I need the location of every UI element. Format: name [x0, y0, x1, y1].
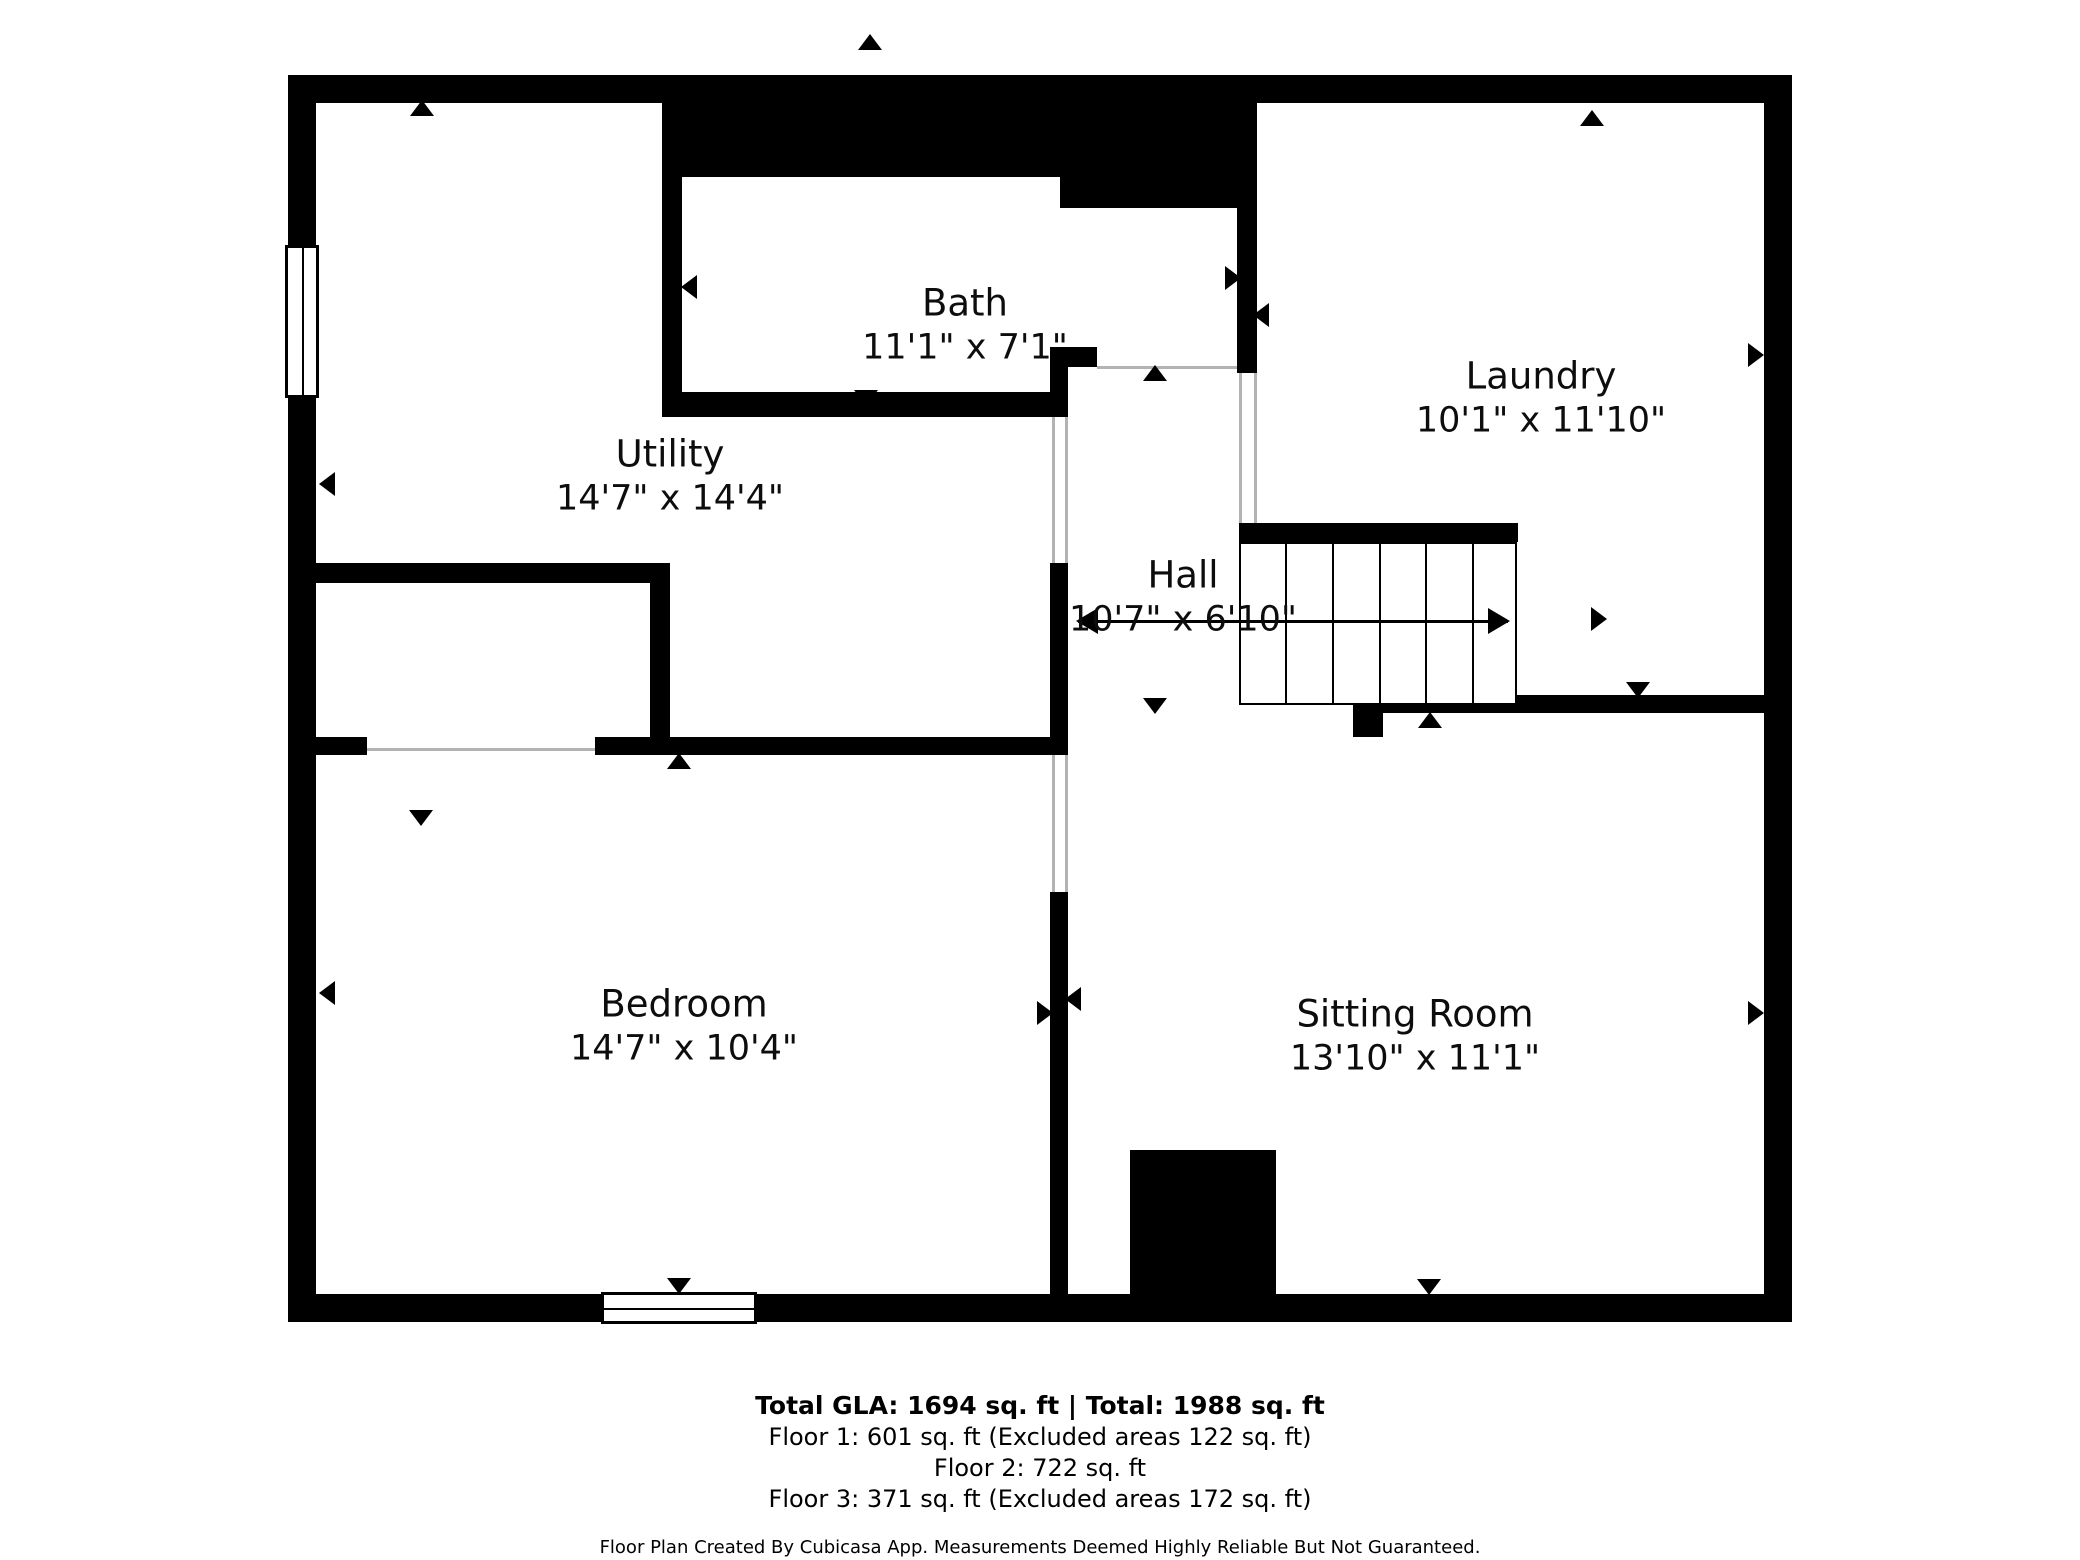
room-dimensions-bath: 11'1" x 7'1" — [862, 326, 1068, 370]
room-name-sitting: Sitting Room — [1290, 992, 1540, 1037]
direction-marker-left — [681, 275, 697, 299]
room-label-bath: Bath11'1" x 7'1" — [862, 281, 1068, 370]
door-opening-line — [1052, 417, 1055, 563]
direction-marker-right — [1225, 266, 1241, 290]
door-opening-line — [1065, 755, 1068, 892]
direction-marker-left — [319, 981, 335, 1005]
floor2-area-text: Floor 2: 722 sq. ft — [0, 1453, 2080, 1484]
direction-marker-up — [410, 100, 434, 116]
room-dimensions-laundry: 10'1" x 11'10" — [1416, 399, 1666, 443]
floor3-area-text: Floor 3: 371 sq. ft (Excluded areas 172 … — [0, 1484, 2080, 1515]
direction-marker-left — [319, 472, 335, 496]
direction-marker-up — [1580, 110, 1604, 126]
room-name-bedroom: Bedroom — [570, 982, 798, 1027]
area-summary: Total GLA: 1694 sq. ft | Total: 1988 sq.… — [0, 1390, 2080, 1559]
direction-marker-down — [1143, 698, 1167, 714]
direction-marker-down — [409, 810, 433, 826]
window-mullion — [604, 1308, 754, 1310]
mass-over-bath — [662, 75, 1060, 177]
direction-marker-down — [1626, 682, 1650, 698]
closet-right-wall — [650, 563, 670, 755]
outer-left-upper — [288, 75, 316, 247]
direction-marker-up — [858, 34, 882, 50]
door-opening-line — [1239, 373, 1242, 523]
room-dimensions-bedroom: 14'7" x 10'4" — [570, 1027, 798, 1071]
door-opening-line — [1097, 366, 1237, 369]
direction-marker-right — [1037, 1001, 1053, 1025]
door-opening-line — [1052, 755, 1055, 892]
room-label-sitting: Sitting Room13'10" x 11'1" — [1290, 992, 1540, 1081]
bath-left-wall — [662, 177, 682, 417]
room-dimensions-hall: 10'7" x 6'10" — [1069, 598, 1297, 642]
hall-left-wall — [1050, 563, 1068, 755]
under-stairs-block — [1353, 713, 1383, 737]
closet-top-wall — [288, 563, 670, 583]
direction-marker-left — [1065, 987, 1081, 1011]
bedroom-top-wall — [595, 737, 1068, 755]
total-gla-text: Total GLA: 1694 sq. ft | Total: 1988 sq.… — [0, 1390, 2080, 1422]
door-opening-line — [1254, 373, 1257, 523]
room-name-laundry: Laundry — [1416, 354, 1666, 399]
room-label-bedroom: Bedroom14'7" x 10'4" — [570, 982, 798, 1071]
room-label-laundry: Laundry10'1" x 11'10" — [1416, 354, 1666, 443]
direction-marker-left — [1253, 303, 1269, 327]
outer-bottom-right — [757, 1294, 1792, 1322]
direction-marker-right — [1748, 343, 1764, 367]
room-dimensions-utility: 14'7" x 14'4" — [556, 477, 784, 521]
direction-marker-up — [667, 753, 691, 769]
room-name-bath: Bath — [862, 281, 1068, 326]
window-bottom-wall — [601, 1292, 757, 1324]
direction-marker-up — [1143, 365, 1167, 381]
stair-tread-line — [1425, 542, 1427, 705]
direction-marker-down — [667, 1278, 691, 1294]
fireplace — [1130, 1150, 1276, 1294]
window-mullion — [302, 248, 304, 395]
direction-marker-up — [1418, 712, 1442, 728]
bedroom-sitting-divider — [1050, 892, 1068, 1294]
direction-marker-down — [1417, 1279, 1441, 1295]
door-opening-line — [367, 748, 595, 751]
direction-marker-right — [1591, 607, 1607, 631]
bedroom-top-stub — [316, 737, 367, 755]
floor-plan: Utility14'7" x 14'4"Bath11'1" x 7'1"Laun… — [0, 0, 2080, 1560]
room-name-hall: Hall — [1069, 553, 1297, 598]
stair-tread-line — [1332, 542, 1334, 705]
room-dimensions-sitting: 13'10" x 11'1" — [1290, 1037, 1540, 1081]
floor1-area-text: Floor 1: 601 sq. ft (Excluded areas 122 … — [0, 1422, 2080, 1453]
outer-bottom-left — [288, 1294, 601, 1322]
stairs-top-bar — [1239, 523, 1518, 542]
outer-right — [1764, 75, 1792, 1322]
stair-tread-line — [1379, 542, 1381, 705]
room-label-utility: Utility14'7" x 14'4" — [556, 432, 784, 521]
room-name-utility: Utility — [556, 432, 784, 477]
direction-marker-right — [1748, 1001, 1764, 1025]
outer-left-lower — [288, 398, 316, 1322]
door-opening-line — [1065, 417, 1068, 563]
mass-over-landing — [1060, 75, 1257, 208]
window-left-wall — [285, 245, 319, 398]
room-label-hall: Hall10'7" x 6'10" — [1069, 553, 1297, 642]
direction-marker-down — [854, 390, 878, 406]
laundry-left-wall — [1237, 208, 1257, 373]
disclaimer-text: Floor Plan Created By Cubicasa App. Meas… — [0, 1537, 2080, 1559]
stair-tread-line — [1472, 542, 1474, 705]
